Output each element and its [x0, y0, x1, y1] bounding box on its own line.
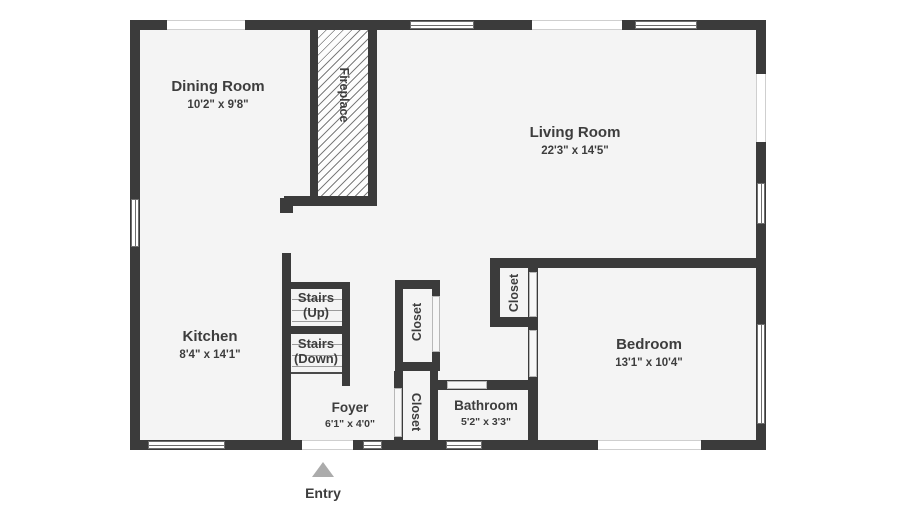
window [757, 183, 765, 224]
room-name: Foyer [300, 400, 400, 417]
floor-plan: Dining Room 10'2" x 9'8" Living Room 22'… [0, 0, 900, 529]
wall-segment [280, 198, 293, 213]
room-label-bathroom: Bathroom 5'2" x 3'3" [436, 398, 536, 429]
room-label-bedroom: Bedroom 13'1" x 10'4" [559, 336, 739, 370]
wall-opening [756, 74, 766, 142]
window [757, 324, 765, 424]
room-label-kitchen: Kitchen 8'4" x 14'1" [120, 328, 300, 362]
room-label-living: Living Room 22'3" x 14'5" [475, 124, 675, 158]
stairs-down-label: Stairs (Down) [284, 336, 348, 366]
window [148, 441, 225, 449]
window [410, 21, 474, 29]
room-name: Bathroom [436, 398, 536, 415]
wall-segment [284, 196, 377, 206]
entry-arrow-icon [312, 462, 334, 477]
closet-label-upper: Closet [410, 303, 424, 341]
room-dims: 13'1" x 10'4" [559, 356, 739, 370]
door-opening [447, 381, 487, 389]
entry-door-opening [302, 440, 353, 450]
room-dims: 10'2" x 9'8" [128, 98, 308, 112]
room-label-foyer: Foyer 6'1" x 4'0" [300, 400, 400, 431]
wall-segment [310, 20, 318, 205]
stairs-up-label: Stairs (Up) [286, 290, 346, 320]
room-name: Bedroom [559, 336, 739, 355]
window [635, 21, 697, 29]
wall-opening [598, 440, 701, 450]
wall-opening [532, 20, 622, 30]
stairs-up-line2: (Up) [286, 305, 346, 320]
fireplace-label: Fireplace [337, 68, 351, 123]
entry-label: Entry [293, 485, 353, 501]
room-dims: 5'2" x 3'3" [436, 416, 536, 429]
window [446, 441, 482, 449]
room-dims: 6'1" x 4'0" [300, 418, 400, 431]
stairs-up-line1: Stairs [286, 290, 346, 305]
stairs-down-line1: Stairs [284, 336, 348, 351]
window [363, 441, 382, 449]
wall-opening [167, 20, 245, 30]
room-dims: 8'4" x 14'1" [120, 348, 300, 362]
door-opening [432, 296, 440, 352]
room-name: Living Room [475, 124, 675, 143]
room-name: Kitchen [120, 328, 300, 347]
wall-segment [395, 280, 403, 371]
wall-segment [395, 362, 440, 371]
door-opening [529, 272, 537, 317]
room-label-dining: Dining Room 10'2" x 9'8" [128, 78, 308, 112]
wall-segment [368, 20, 377, 205]
door-opening [529, 330, 537, 377]
wall-segment [291, 372, 342, 374]
stairs-down-line2: (Down) [284, 351, 348, 366]
room-name: Dining Room [128, 78, 308, 97]
room-dims: 22'3" x 14'5" [475, 144, 675, 158]
closet-label-lower: Closet [409, 393, 423, 431]
closet-label-bedroom: Closet [507, 274, 521, 312]
window [131, 199, 139, 247]
